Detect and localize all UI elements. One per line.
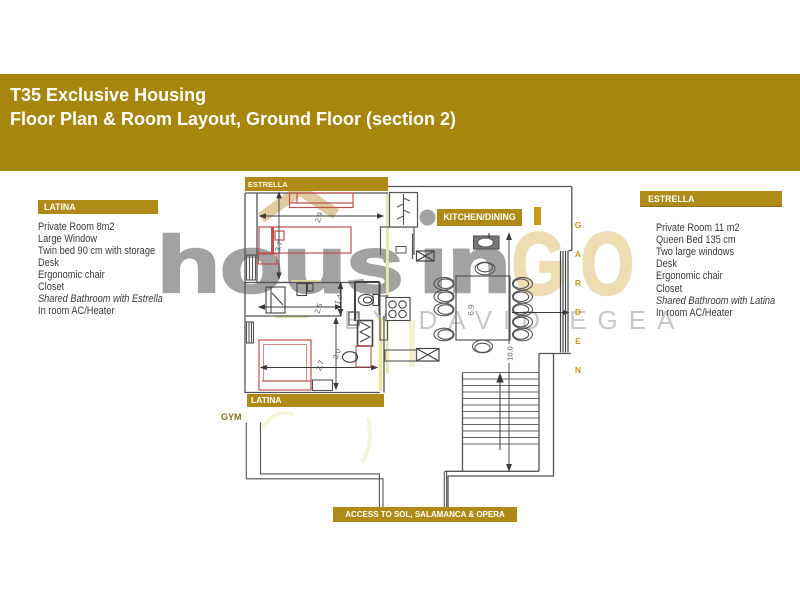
svg-text:N: N — [575, 365, 581, 375]
svg-text:D: D — [575, 307, 581, 317]
svg-text:2.7: 2.7 — [314, 359, 326, 372]
svg-text:3.0: 3.0 — [331, 348, 343, 361]
svg-text:10.0: 10.0 — [506, 346, 515, 361]
svg-text:A: A — [575, 249, 581, 259]
svg-text:E: E — [575, 336, 581, 346]
svg-text:6.9: 6.9 — [467, 304, 476, 316]
svg-text:R: R — [575, 278, 581, 288]
svg-text:G: G — [575, 220, 582, 230]
svg-text:housın: housın — [157, 219, 511, 309]
